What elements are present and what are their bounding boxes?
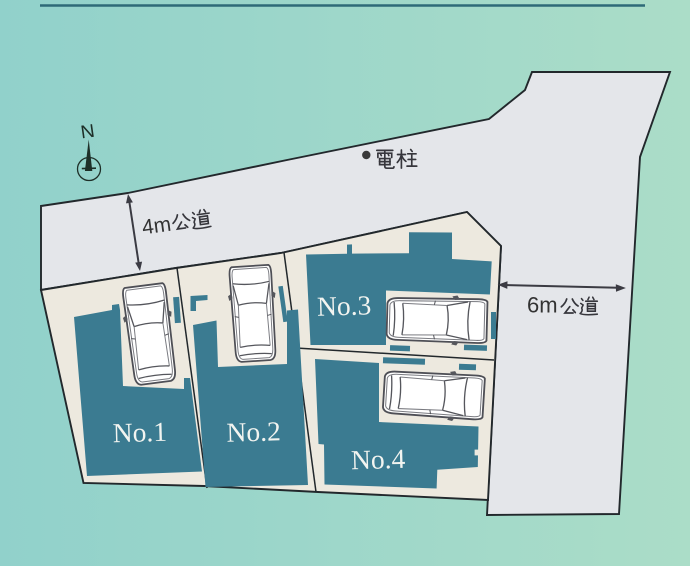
svg-text:4m: 4m xyxy=(141,213,173,240)
svg-text:No.4: No.4 xyxy=(351,443,406,475)
svg-text:No.3: No.3 xyxy=(317,289,372,321)
svg-text:No.2: No.2 xyxy=(226,415,281,447)
svg-text:No.1: No.1 xyxy=(112,416,167,448)
svg-text:N: N xyxy=(79,121,96,143)
svg-text:6m: 6m xyxy=(527,293,558,318)
